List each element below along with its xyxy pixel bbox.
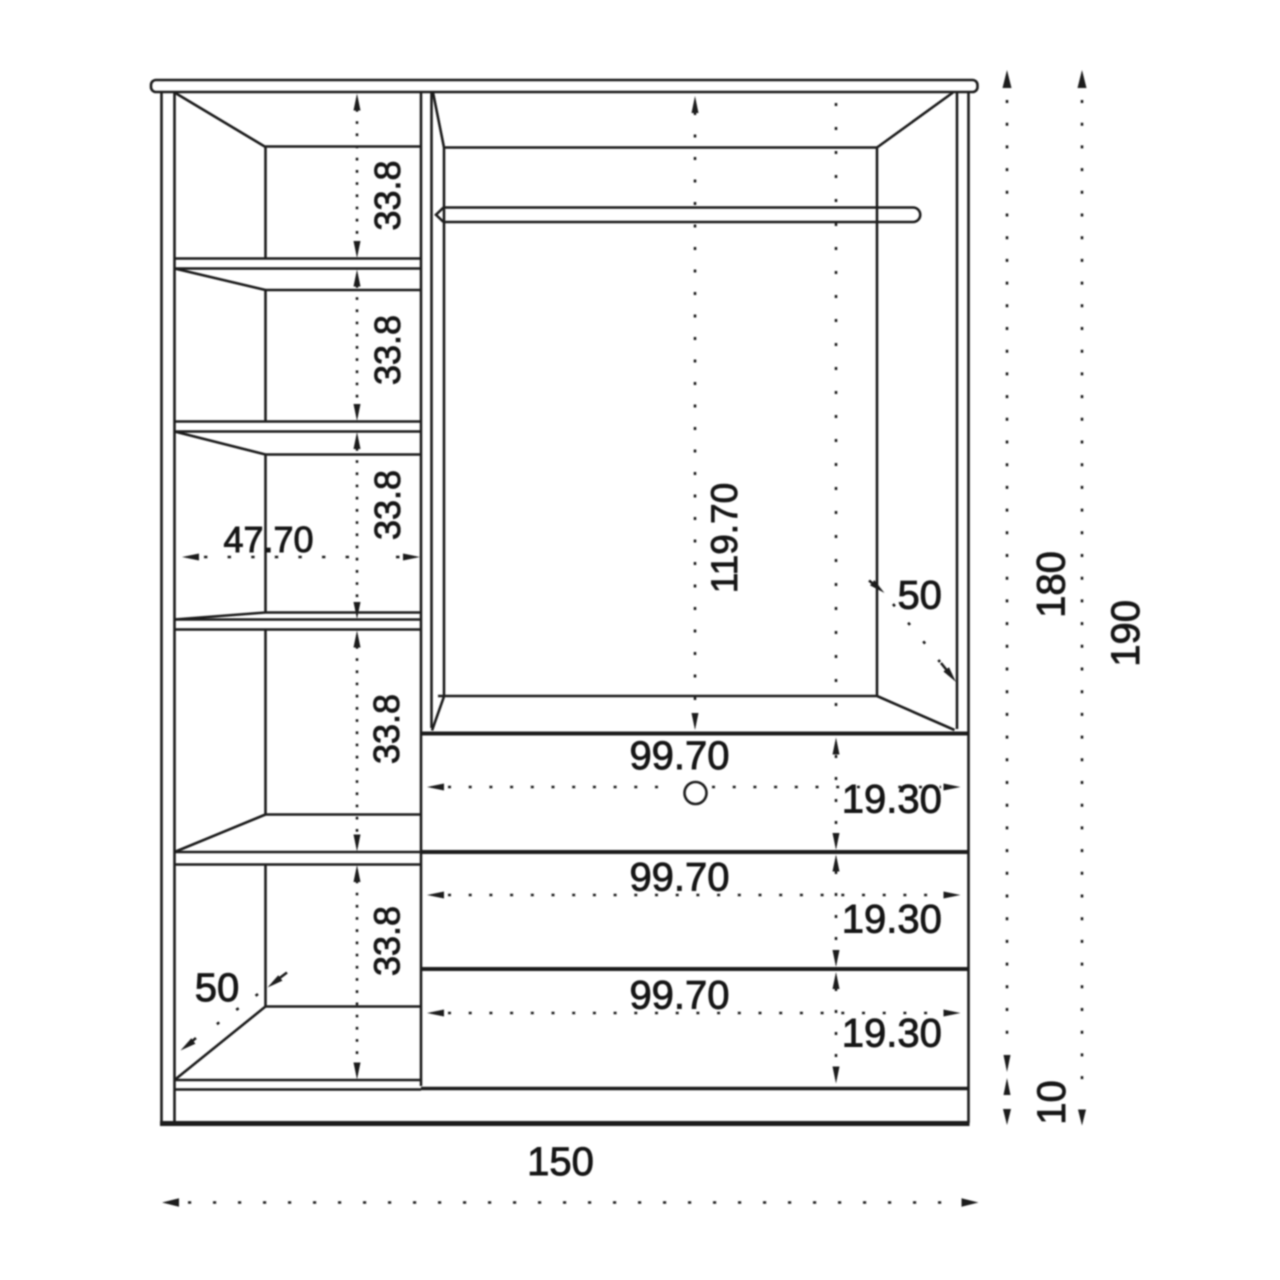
svg-text:19.30: 19.30 <box>842 897 942 941</box>
svg-text:47.70: 47.70 <box>223 519 313 560</box>
svg-text:19.30: 19.30 <box>842 1012 942 1056</box>
svg-text:99.70: 99.70 <box>629 734 729 778</box>
svg-text:19.30: 19.30 <box>842 778 942 822</box>
svg-text:50: 50 <box>897 574 942 618</box>
svg-text:99.70: 99.70 <box>629 974 729 1018</box>
svg-text:33.8: 33.8 <box>367 470 408 540</box>
svg-text:190: 190 <box>1104 600 1148 667</box>
svg-text:119.70: 119.70 <box>704 483 745 593</box>
svg-text:33.8: 33.8 <box>366 694 407 764</box>
svg-text:33.8: 33.8 <box>367 315 408 385</box>
svg-text:150: 150 <box>527 1140 594 1184</box>
svg-text:33.8: 33.8 <box>367 160 408 230</box>
svg-text:33.8: 33.8 <box>367 906 408 976</box>
svg-text:10: 10 <box>1030 1080 1074 1125</box>
svg-text:50: 50 <box>195 966 240 1010</box>
svg-text:99.70: 99.70 <box>629 856 729 900</box>
svg-text:180: 180 <box>1030 551 1074 618</box>
